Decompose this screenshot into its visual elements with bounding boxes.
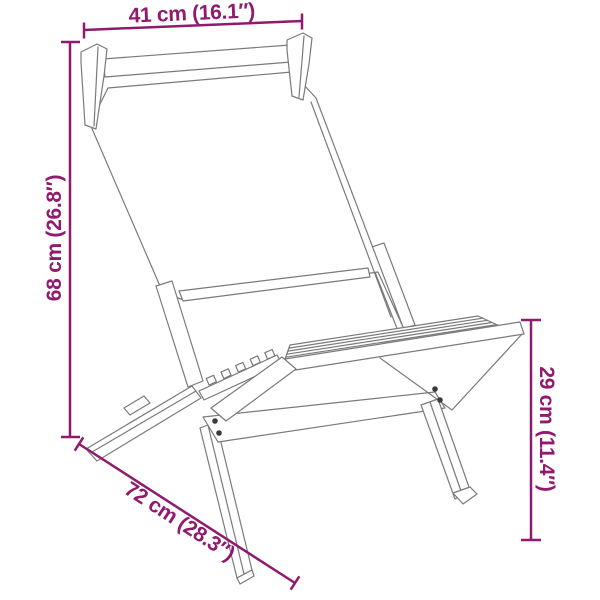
chair-front-right-leg [421,399,470,499]
product-dimension-diagram: 41 cm (16.1″) 68 cm (26.8″) 72 cm (28.3″… [0,0,600,600]
chair-front-right-leg-edge [430,402,462,494]
seat-height-dimension-label: 29 cm (11.4″) [535,366,558,491]
height-dimension-label: 68 cm (26.8″) [43,175,66,301]
chair-right-side-rail-line [452,333,523,410]
screw-dot [212,418,218,424]
screw-dot [216,430,222,436]
chair-runner-block [124,396,150,415]
dimension-tick [75,437,84,450]
chair-top-rail [103,45,291,77]
screw-dot [437,397,443,403]
screw-dot [432,386,438,392]
dimension-tick [291,576,300,589]
